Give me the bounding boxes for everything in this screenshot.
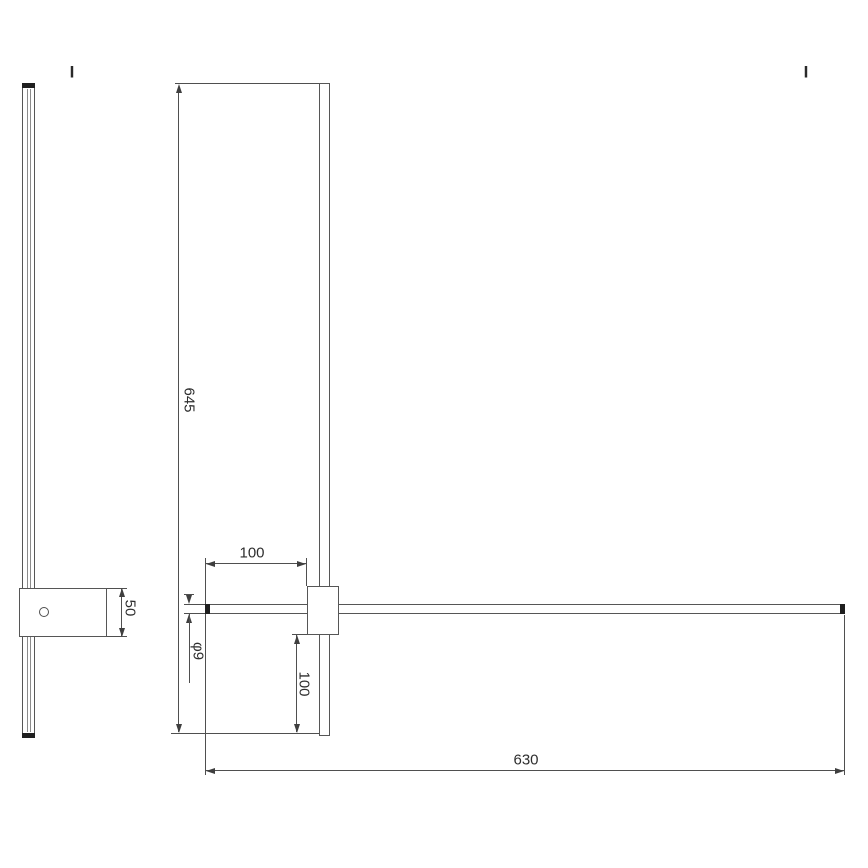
dim-100-top-arrow-right — [297, 561, 306, 567]
front-tube-outline — [319, 83, 330, 736]
dim-645-ext-top — [175, 83, 320, 84]
side-mount-bracket — [19, 588, 107, 637]
side-tube-bottom-cap — [22, 733, 35, 738]
dim-645-label: 645 — [182, 387, 197, 412]
front-bar-right-cap — [840, 604, 845, 614]
dim-645-ext-bottom — [171, 733, 320, 734]
technical-drawing-canvas: I I 50 645 — [0, 0, 868, 868]
dim-100-bottom-arrow-down — [294, 724, 300, 733]
dim-645-arrow-up — [176, 84, 182, 93]
dim-100-top-label: 100 — [239, 546, 264, 561]
dim-100-bottom-arrow-up — [294, 635, 300, 644]
front-junction-box — [307, 586, 339, 635]
dim-645-line — [178, 87, 179, 732]
dim-50-label: 50 — [123, 600, 138, 617]
screw-hole-icon — [39, 607, 49, 617]
dim-50-arrow-down — [119, 628, 125, 637]
dim-630-line — [206, 770, 844, 771]
side-tube-top-cap — [22, 83, 35, 88]
section-marker-right: I — [804, 64, 809, 81]
dim-100-top-ext-right — [306, 558, 307, 586]
side-tube-outline — [22, 83, 35, 738]
dim-630-arrow-right — [835, 768, 844, 774]
dim-phi9-label: φ9 — [191, 642, 206, 660]
front-bar-left-cap — [205, 604, 210, 614]
shared-extension-line-left — [205, 558, 206, 775]
dim-630-label: 630 — [513, 753, 538, 768]
dim-100-top-arrow-left — [206, 561, 215, 567]
dim-phi9-ext-top — [184, 604, 205, 605]
dim-100-top-line — [206, 563, 306, 564]
dim-phi9-arrow-down — [186, 595, 192, 604]
front-bar-outline — [205, 604, 845, 614]
dim-630-ext-right — [844, 615, 845, 775]
dim-50-arrow-up — [119, 588, 125, 597]
dim-100-bottom-label: 100 — [297, 671, 312, 696]
dim-645-arrow-down — [176, 724, 182, 733]
dim-630-arrow-left — [206, 768, 215, 774]
section-marker-left: I — [70, 64, 75, 81]
